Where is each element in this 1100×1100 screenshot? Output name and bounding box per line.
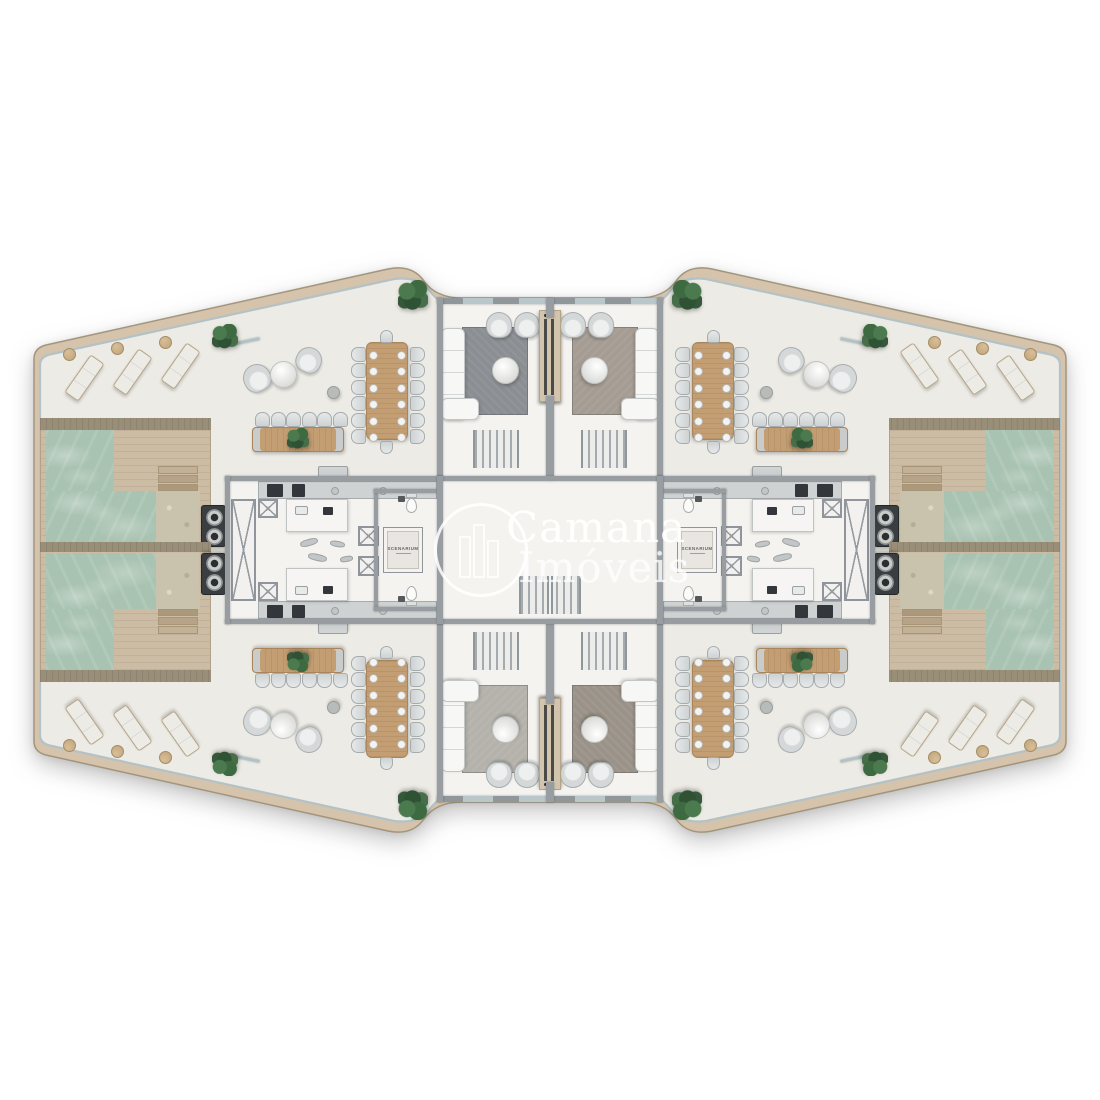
- core-wall: [870, 476, 875, 624]
- core-wall: [437, 476, 443, 624]
- core-wall: [225, 476, 875, 481]
- core-wall: [225, 619, 875, 624]
- core-wall: [225, 476, 230, 624]
- wall: [657, 622, 663, 802]
- plaque-text: SCENARIUM: [387, 546, 418, 551]
- wall: [546, 620, 554, 704]
- wall: [437, 298, 443, 478]
- plaque-subtitle-line: [396, 553, 411, 554]
- floor-plan-render: SCENARIUM SCENARIUM Camana Imóveis: [0, 0, 1100, 1100]
- floor-plaque-left: SCENARIUM: [383, 527, 423, 573]
- plaque-subtitle-line: [690, 553, 705, 554]
- wall: [546, 396, 554, 480]
- plaque-text: SCENARIUM: [681, 546, 712, 551]
- wall: [437, 622, 443, 802]
- core-wall: [657, 476, 663, 624]
- core-floor: [225, 476, 875, 624]
- wall: [546, 298, 554, 318]
- wall: [546, 782, 554, 802]
- floor-plaque-right: SCENARIUM: [677, 527, 717, 573]
- wall: [657, 298, 663, 478]
